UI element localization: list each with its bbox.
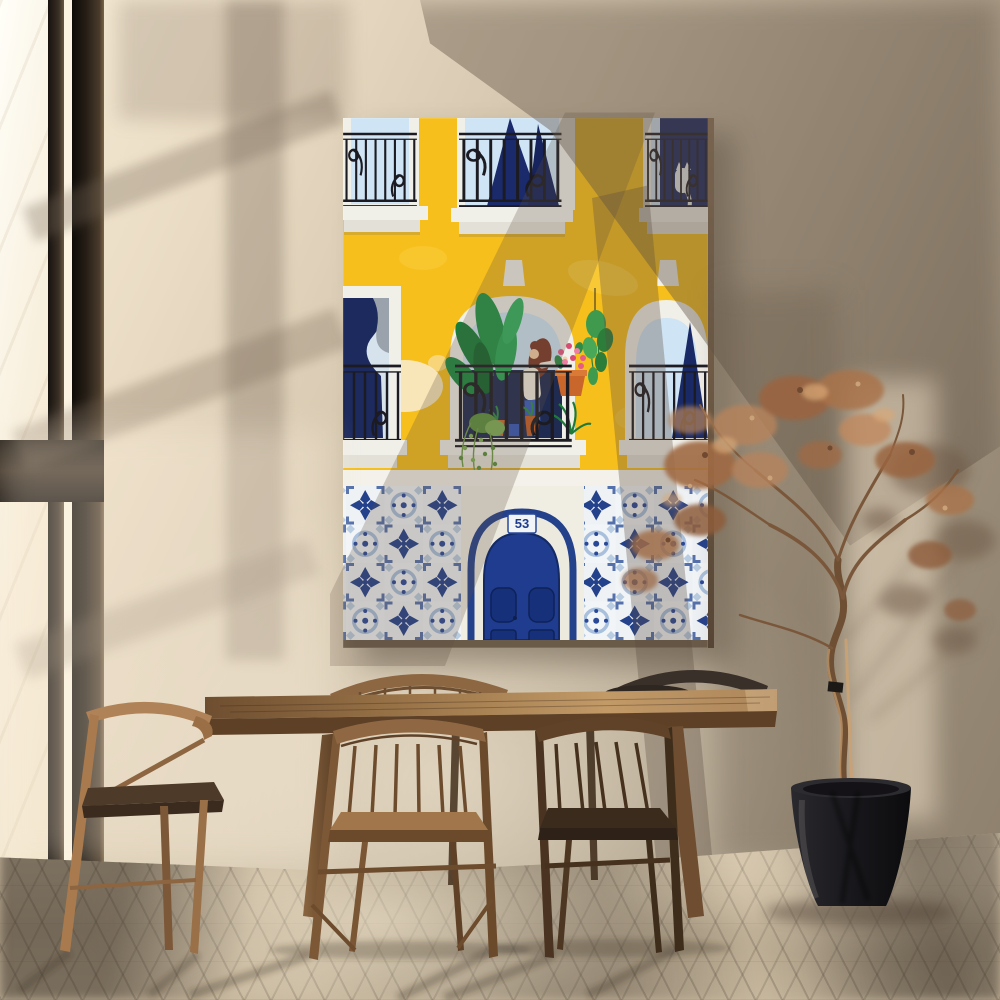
chair-seat <box>330 812 488 830</box>
chair-front-left <box>309 719 498 960</box>
top-window-center <box>451 118 575 237</box>
top-window-left <box>343 118 428 235</box>
room-scene: 53 <box>0 0 1000 1000</box>
top-window-right <box>639 118 708 234</box>
chair-left-profile <box>60 702 224 954</box>
furniture-floor-shadows <box>20 939 730 998</box>
mid-window-left <box>343 286 407 468</box>
chair-front-right <box>535 717 684 958</box>
blue-door: 53 <box>461 486 584 642</box>
dining-set <box>0 630 1000 1000</box>
door-number: 53 <box>515 516 529 531</box>
door-number-plaque: 53 <box>508 514 536 533</box>
chair-seat <box>540 808 676 828</box>
window-cross-rail <box>0 440 104 502</box>
